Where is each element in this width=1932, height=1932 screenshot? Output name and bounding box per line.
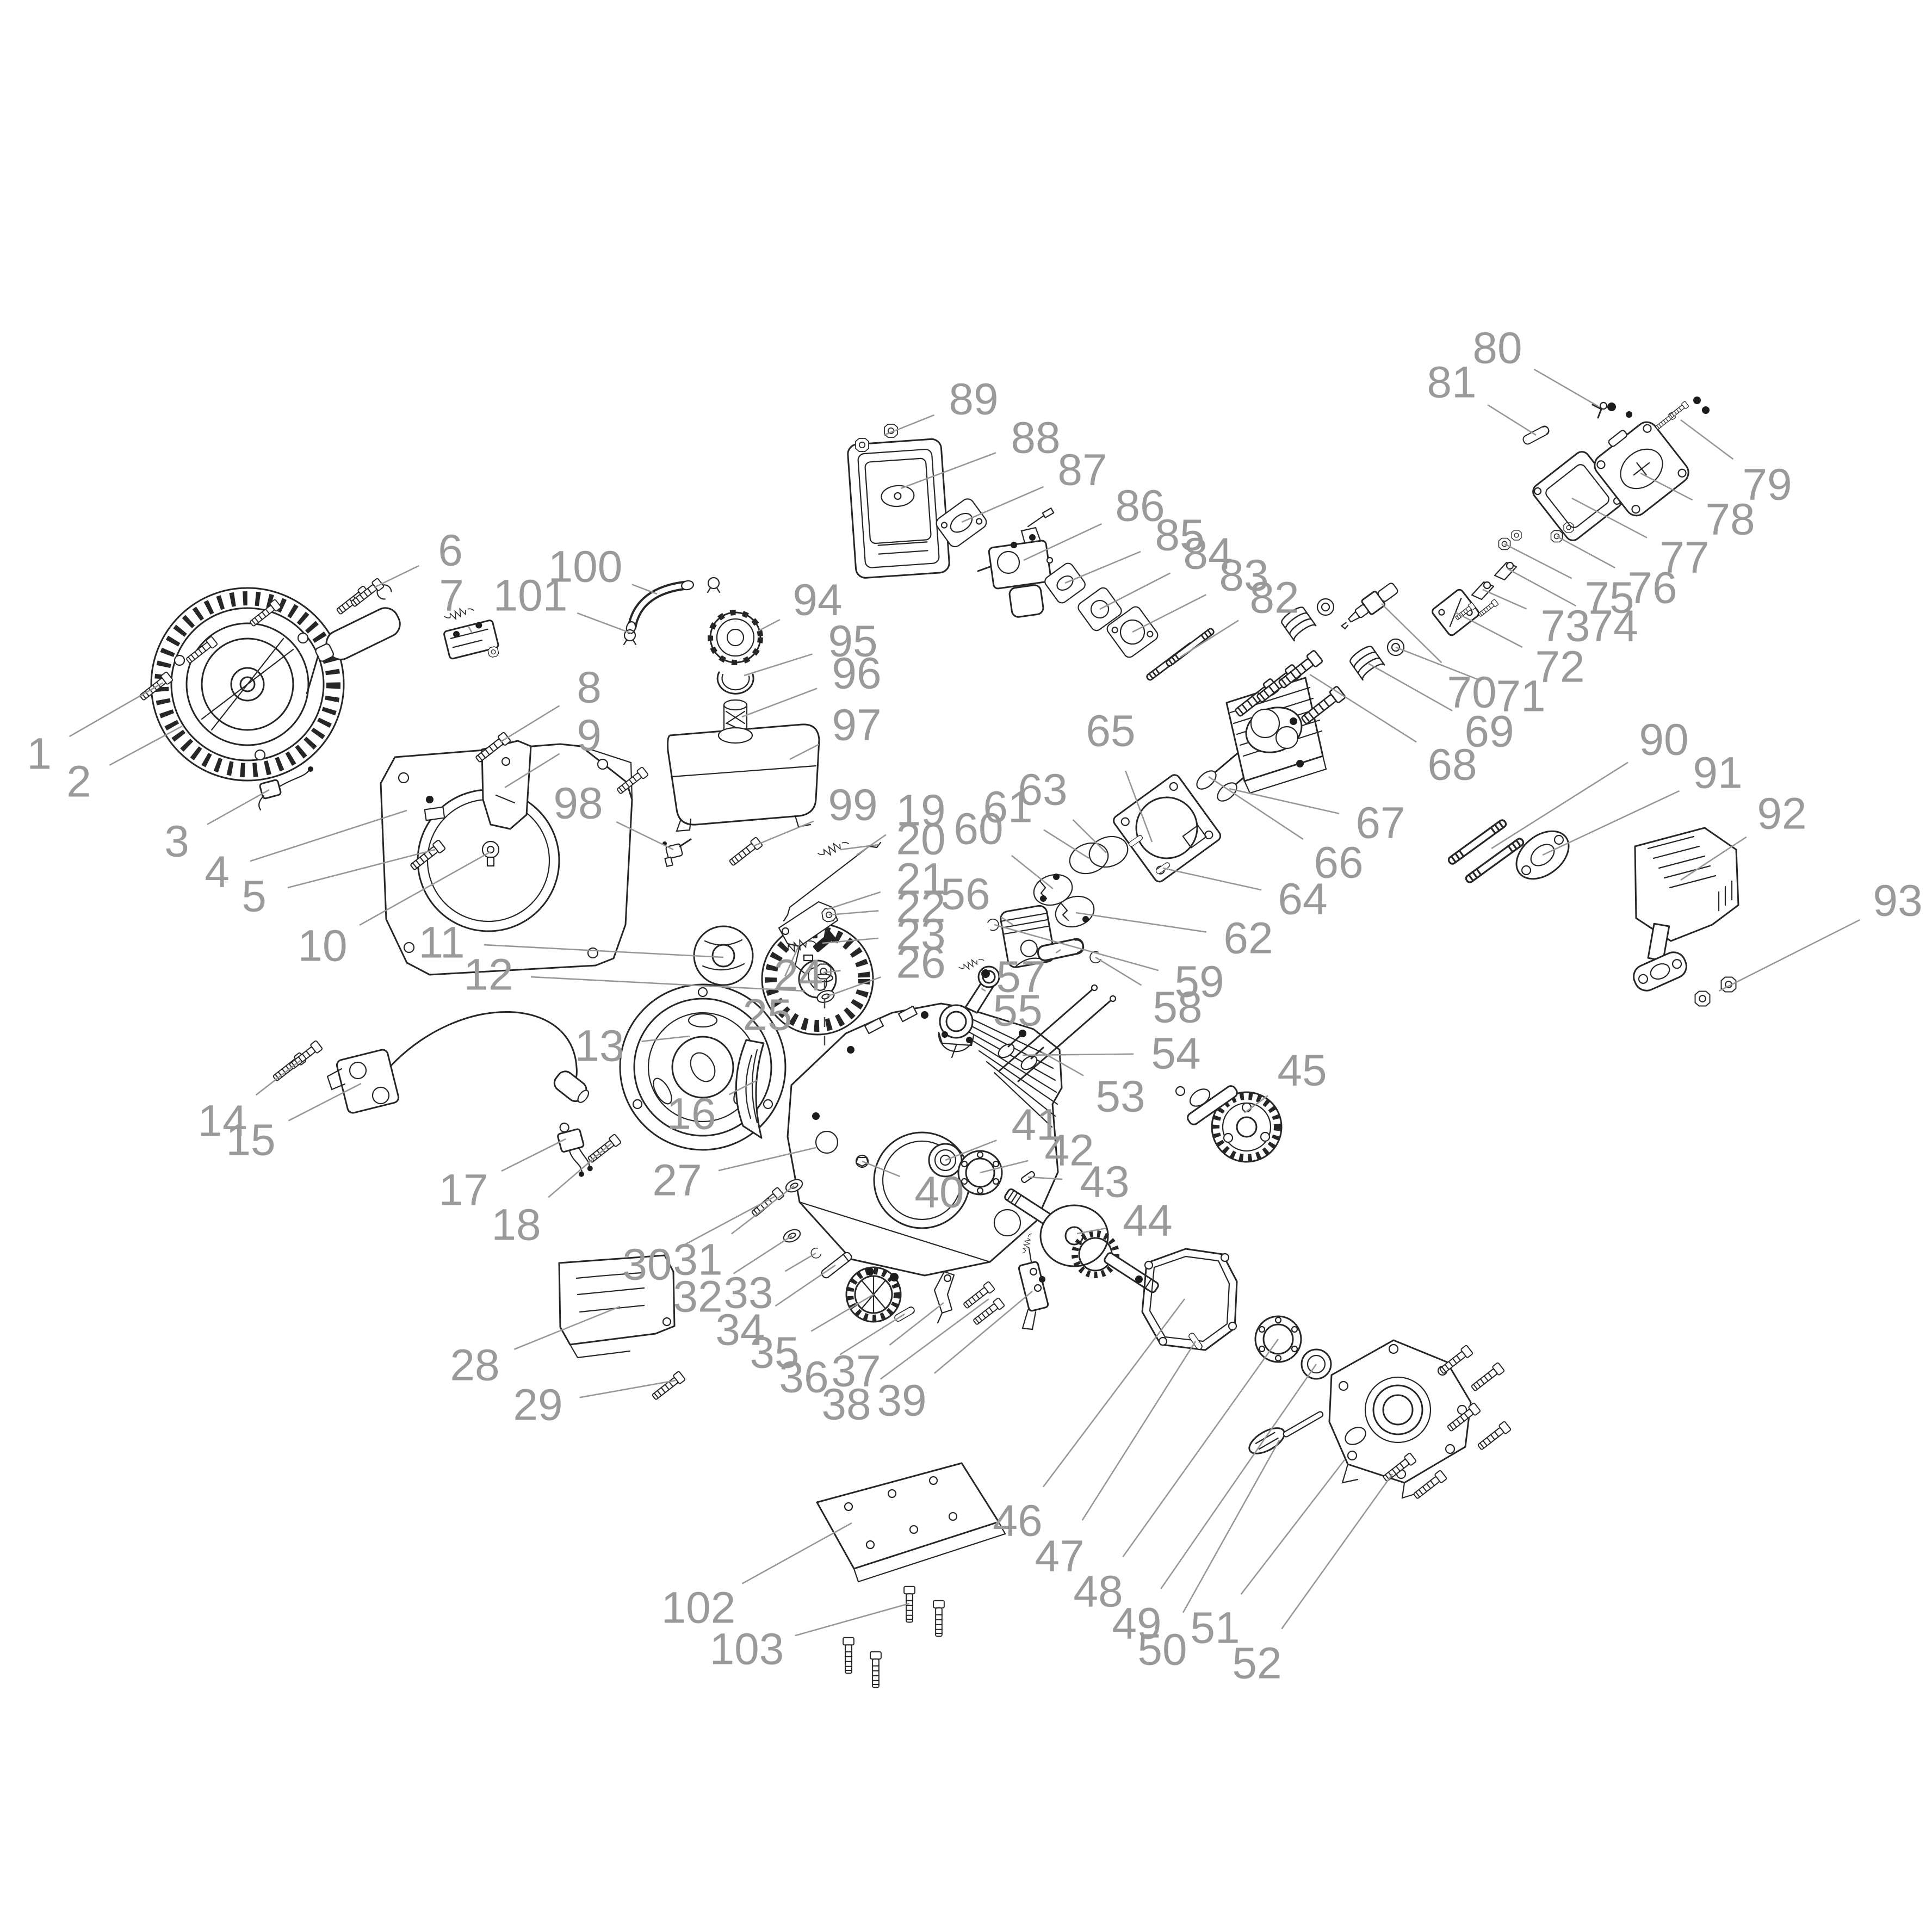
engine-exploded-diagram: 1234567891011121314151617181920212223242… xyxy=(0,0,1932,1932)
callout-label-29: 29 xyxy=(513,1380,562,1430)
callout-label-10: 10 xyxy=(298,921,347,971)
callout-label-97: 97 xyxy=(832,701,881,750)
callout-label-101: 101 xyxy=(493,571,568,621)
callout-label-89: 89 xyxy=(949,375,998,424)
callout-label-86: 86 xyxy=(1115,481,1165,531)
callout-label-7: 7 xyxy=(439,571,464,621)
callout-label-26: 26 xyxy=(896,938,945,988)
callout-label-25: 25 xyxy=(742,990,792,1040)
callout-label-57: 57 xyxy=(996,952,1045,1002)
callout-label-91: 91 xyxy=(1693,748,1742,798)
callout-label-3: 3 xyxy=(164,817,189,866)
callout-label-28: 28 xyxy=(450,1341,499,1390)
callout-label-63: 63 xyxy=(1018,765,1067,815)
callout-label-80: 80 xyxy=(1472,324,1522,373)
callout-label-75: 75 xyxy=(1584,573,1634,623)
callout-label-1: 1 xyxy=(27,729,52,779)
callout-label-12: 12 xyxy=(463,950,513,1000)
callout-label-45: 45 xyxy=(1277,1046,1327,1095)
callout-label-5: 5 xyxy=(242,872,267,921)
callout-label-67: 67 xyxy=(1355,798,1405,848)
air-cleaner xyxy=(847,438,950,578)
recoil-starter xyxy=(151,588,344,781)
callout-label-92: 92 xyxy=(1757,789,1806,839)
callout-label-96: 96 xyxy=(832,649,881,698)
callout-label-73: 73 xyxy=(1540,602,1590,651)
callout-label-90: 90 xyxy=(1639,715,1688,765)
callout-label-6: 6 xyxy=(438,526,463,575)
callout-label-16: 16 xyxy=(666,1089,716,1139)
muffler-nut-a xyxy=(1695,992,1710,1006)
callout-label-53: 53 xyxy=(1095,1072,1145,1122)
callout-label-38: 38 xyxy=(821,1380,871,1429)
callout-label-54: 54 xyxy=(1151,1029,1200,1079)
callout-label-56: 56 xyxy=(940,870,990,919)
callout-label-2: 2 xyxy=(66,757,91,807)
callout-label-62: 62 xyxy=(1223,914,1273,963)
callout-label-81: 81 xyxy=(1427,358,1476,407)
callout-label-79: 79 xyxy=(1742,460,1792,510)
callout-label-59: 59 xyxy=(1174,957,1224,1007)
callout-label-93: 93 xyxy=(1873,876,1922,926)
callout-label-17: 17 xyxy=(438,1166,488,1215)
callout-label-11: 11 xyxy=(418,918,465,968)
callout-label-88: 88 xyxy=(1011,413,1060,463)
callout-label-77: 77 xyxy=(1659,533,1709,583)
callout-label-40: 40 xyxy=(914,1168,964,1217)
callout-label-87: 87 xyxy=(1057,445,1107,495)
callout-label-39: 39 xyxy=(877,1376,926,1426)
callout-label-13: 13 xyxy=(574,1021,624,1071)
callout-label-50: 50 xyxy=(1137,1625,1187,1675)
callout-label-18: 18 xyxy=(491,1200,541,1250)
callout-label-30: 30 xyxy=(622,1240,672,1290)
callout-label-103: 103 xyxy=(710,1625,784,1674)
callout-label-44: 44 xyxy=(1123,1196,1172,1246)
callout-label-9: 9 xyxy=(577,711,602,760)
callout-label-70: 70 xyxy=(1447,668,1496,717)
callout-label-98: 98 xyxy=(553,779,603,828)
callout-label-65: 65 xyxy=(1086,707,1135,756)
pivot-nut-a2 xyxy=(1512,530,1521,540)
spring-retainer-a xyxy=(1317,599,1334,615)
callout-label-8: 8 xyxy=(577,663,602,713)
callout-label-27: 27 xyxy=(652,1156,702,1205)
callout-label-43: 43 xyxy=(1080,1157,1129,1207)
callout-label-15: 15 xyxy=(226,1116,275,1165)
muffler-nut-b xyxy=(1722,977,1736,992)
callout-label-99: 99 xyxy=(828,781,877,830)
aircleaner-nut-a xyxy=(856,438,869,451)
fuel-cap xyxy=(710,612,760,662)
fuel-tank xyxy=(668,725,820,831)
callout-label-52: 52 xyxy=(1232,1639,1281,1688)
callout-label-4: 4 xyxy=(205,847,230,897)
